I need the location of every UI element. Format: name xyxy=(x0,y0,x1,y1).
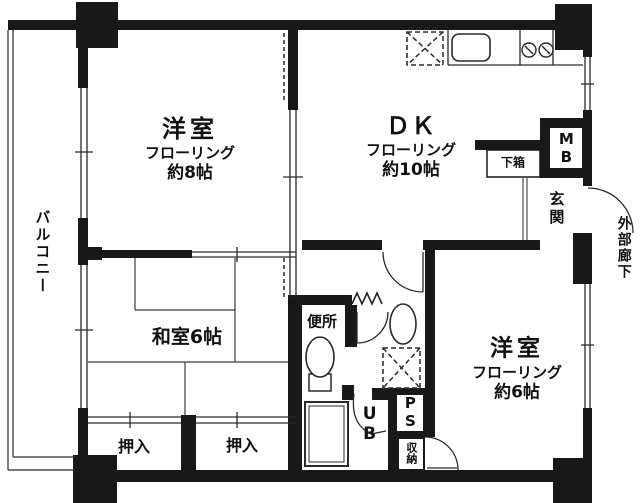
room-name: ＤＫ xyxy=(366,111,456,141)
gas-stove-icon xyxy=(522,43,553,57)
fusuma-west8-japanese xyxy=(192,247,296,262)
walls xyxy=(8,2,592,503)
room-floor: フローリング xyxy=(366,141,456,160)
window-japanese-balcony xyxy=(75,265,93,408)
wall-right xyxy=(583,50,592,57)
washing-machine-space-icon xyxy=(383,348,420,388)
label-exterior-corridor: 外部廊下 xyxy=(614,216,632,280)
label-meter-box: MB xyxy=(557,130,576,166)
washbasin-icon xyxy=(390,304,416,344)
label-balcony: バルコニー xyxy=(33,210,52,295)
zigzag-partition-icon xyxy=(352,293,382,304)
wall-bottom xyxy=(110,470,560,482)
wall-left xyxy=(78,30,88,88)
wall-dk-bottom xyxy=(423,240,540,250)
label-dk: ＤＫ フローリング 約10帖 xyxy=(366,111,456,181)
entrance-step-line xyxy=(523,178,527,240)
wall-between-west8-japanese xyxy=(78,250,192,258)
room-size: 約6帖 xyxy=(472,382,562,403)
room-name: 洋室 xyxy=(472,335,562,364)
refrigerator-space-icon xyxy=(407,32,443,65)
label-shoe-cabinet: 下箱 xyxy=(501,156,525,171)
label-unit-bath: UB xyxy=(358,404,379,444)
floor-plan: 洋室 フローリング 約8帖 ＤＫ フローリング 約10帖 洋室 フローリング 約… xyxy=(0,0,640,503)
window-west8-balcony xyxy=(75,88,93,218)
label-japanese-room: 和室6帖 xyxy=(146,325,228,351)
door-dk-to-washroom xyxy=(383,252,423,292)
label-pipe-space: PS xyxy=(401,394,420,430)
bathtub-inner xyxy=(309,406,344,462)
label-west-room-6: 洋室 フローリング 約6帖 xyxy=(472,335,562,404)
label-storage: 収納 xyxy=(404,442,418,464)
label-closet-right: 押入 xyxy=(226,436,258,456)
wall-wet-left xyxy=(288,297,302,470)
wall-meterbox-bottom xyxy=(540,169,592,178)
label-entrance: 玄関 xyxy=(547,191,566,227)
wall-corridor-top xyxy=(302,240,382,250)
kitchen-sink-icon xyxy=(452,34,490,61)
door-storage-to-west6 xyxy=(425,437,458,470)
window-west6-right xyxy=(581,284,594,408)
floor-plan-drawing xyxy=(0,0,640,503)
wall-above-shoebox xyxy=(475,140,547,150)
label-toilet: 便所 xyxy=(306,313,338,332)
sliding-partition-west8-dk xyxy=(283,110,303,297)
wall-between-west8-dk xyxy=(288,20,298,110)
toilet-icon xyxy=(306,337,334,377)
door-washroom-inner xyxy=(357,312,388,343)
room-size: 約8帖 xyxy=(145,163,235,184)
room-size: 約10帖 xyxy=(366,160,456,181)
wall-ub-top xyxy=(342,388,352,400)
wall-left xyxy=(78,408,88,470)
wall-column-top-right xyxy=(555,4,592,50)
label-west-room-8: 洋室 フローリング 約8帖 xyxy=(145,114,235,184)
room-name: 洋室 xyxy=(145,114,235,144)
room-floor: フローリング xyxy=(145,144,235,163)
room-floor: フローリング xyxy=(472,363,562,382)
wall-right xyxy=(583,408,592,458)
wall-right xyxy=(573,233,592,284)
label-closet-left: 押入 xyxy=(118,437,150,457)
wall-toilet-right xyxy=(345,305,357,347)
wall-closet-divider xyxy=(181,415,196,470)
bathtub-icon xyxy=(305,402,348,466)
